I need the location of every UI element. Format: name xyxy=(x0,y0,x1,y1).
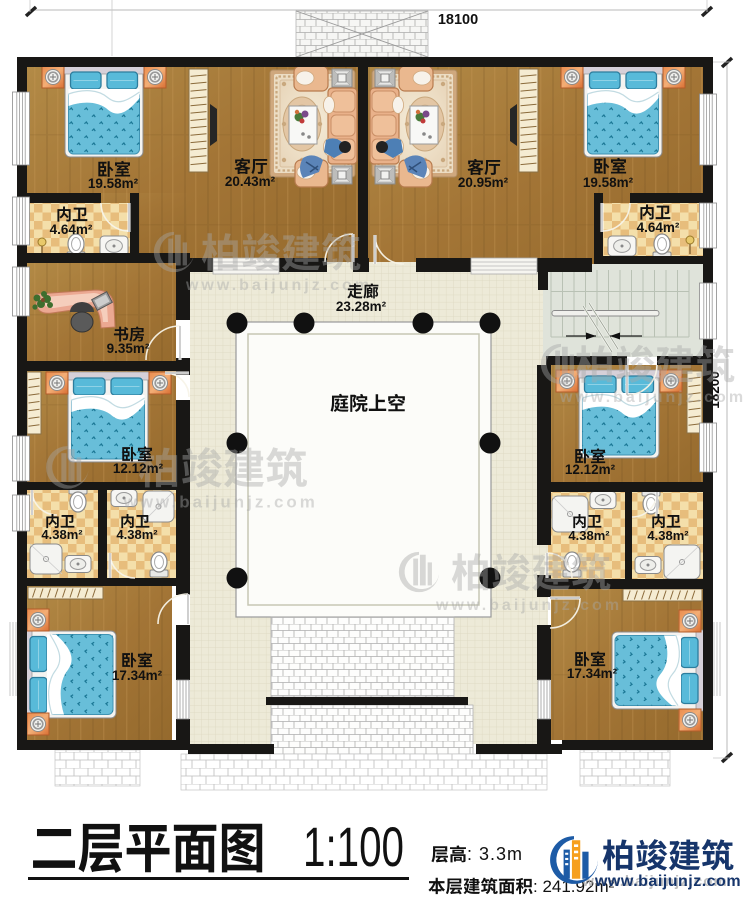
svg-text:4.38m²: 4.38m² xyxy=(568,528,610,543)
svg-text:4.64m²: 4.64m² xyxy=(50,222,93,237)
svg-text:www.baijunjz.com: www.baijunjz.com xyxy=(185,277,372,294)
svg-text:www.baijunjz.com: www.baijunjz.com xyxy=(123,493,318,512)
svg-text:23.28m²: 23.28m² xyxy=(336,299,387,314)
svg-text:19.58m²: 19.58m² xyxy=(583,175,634,190)
svg-text:12.12m²: 12.12m² xyxy=(565,462,616,477)
svg-text:17.34m²: 17.34m² xyxy=(567,666,618,681)
svg-text:4.38m²: 4.38m² xyxy=(116,527,158,542)
svg-text:4.64m²: 4.64m² xyxy=(637,220,680,235)
svg-text:4.38m²: 4.38m² xyxy=(41,527,83,542)
svg-text:20.43m²: 20.43m² xyxy=(225,174,276,189)
svg-text:17.34m²: 17.34m² xyxy=(112,668,163,683)
svg-text:www.baijunjz.com: www.baijunjz.com xyxy=(559,389,746,406)
svg-text:4.38m²: 4.38m² xyxy=(647,528,689,543)
svg-text:1:100: 1:100 xyxy=(303,815,404,878)
svg-text:12.12m²: 12.12m² xyxy=(113,461,164,476)
svg-text:18100: 18100 xyxy=(438,12,478,28)
svg-text:: 3.3m: : 3.3m xyxy=(467,844,523,864)
svg-text:20.95m²: 20.95m² xyxy=(458,175,509,190)
svg-text:www.baijunjz.com: www.baijunjz.com xyxy=(435,597,622,614)
svg-text:19.58m²: 19.58m² xyxy=(88,176,139,191)
svg-text:9.35m²: 9.35m² xyxy=(107,341,150,356)
svg-text:www.baijunjz.com: www.baijunjz.com xyxy=(594,873,741,890)
